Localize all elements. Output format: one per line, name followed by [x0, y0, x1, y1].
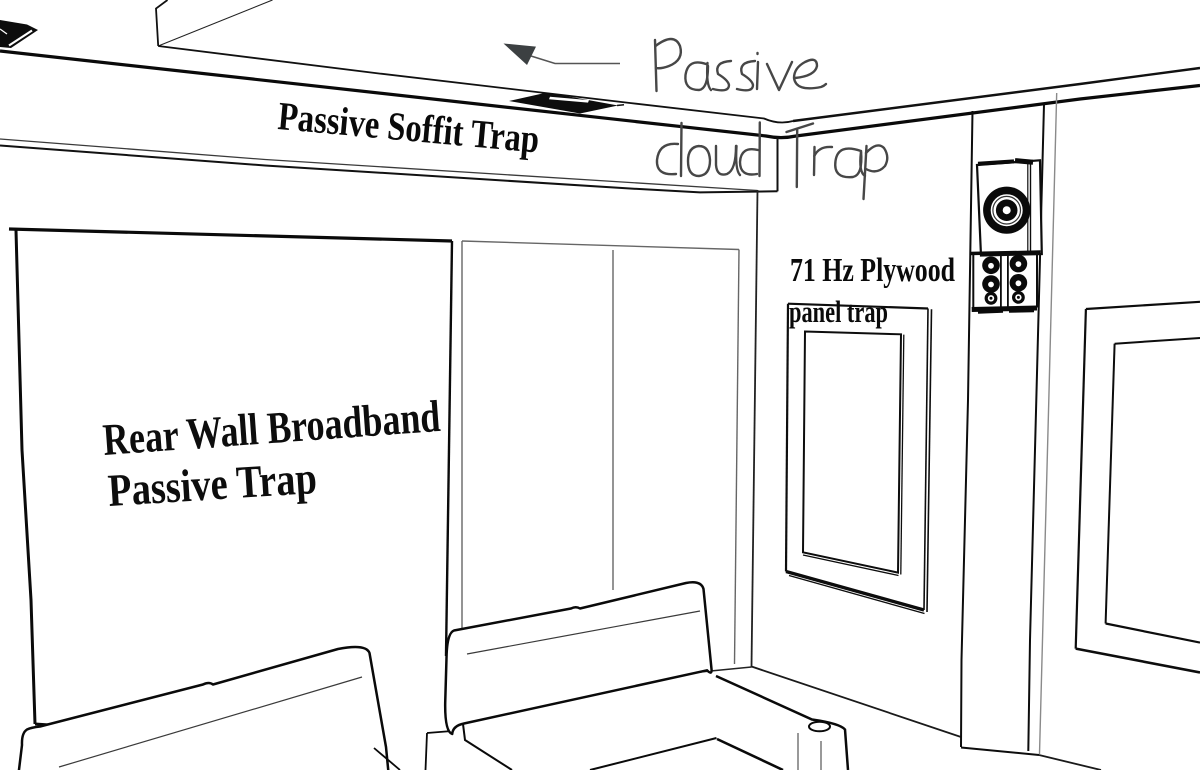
svg-text:71 Hz Plywood: 71 Hz Plywood	[790, 252, 955, 289]
svg-text:panel trap: panel trap	[789, 294, 888, 329]
